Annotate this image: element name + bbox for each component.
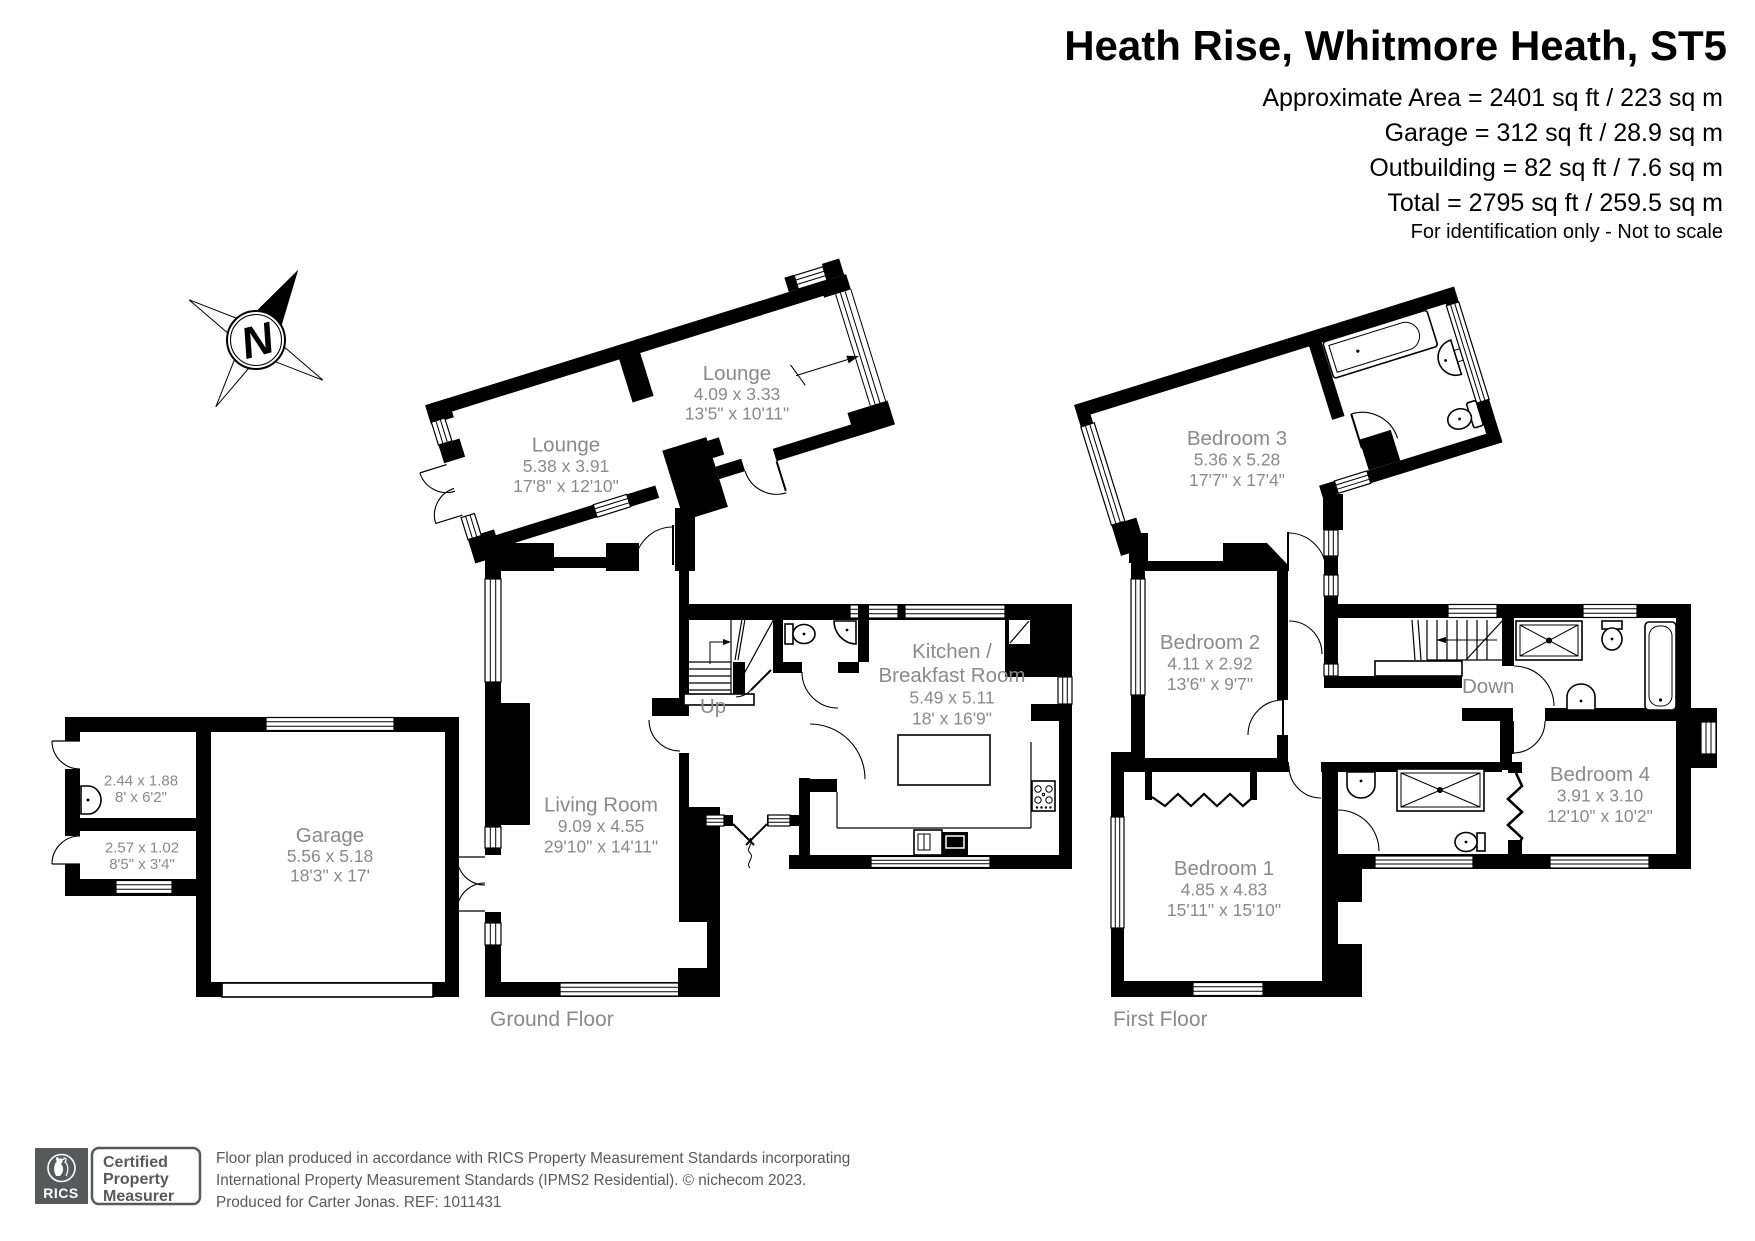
svg-text:Floor plan produced in accorda: Floor plan produced in accordance with R…: [216, 1150, 850, 1167]
svg-text:Down: Down: [1462, 675, 1514, 698]
svg-text:Outbuilding = 82 sq ft / 7.6 s: Outbuilding = 82 sq ft / 7.6 sq m: [1369, 154, 1723, 182]
svg-text:29'10" x 14'11": 29'10" x 14'11": [544, 837, 658, 857]
svg-text:8' x 6'2": 8' x 6'2": [115, 789, 167, 806]
svg-text:4.09 x 3.33: 4.09 x 3.33: [694, 384, 781, 404]
svg-text:12'10" x 10'2": 12'10" x 10'2": [1547, 806, 1653, 826]
svg-text:13'6" x 9'7": 13'6" x 9'7": [1167, 674, 1253, 694]
svg-text:International Property Measure: International Property Measurement Stand…: [216, 1172, 806, 1189]
svg-text:First Floor: First Floor: [1113, 1008, 1208, 1031]
svg-text:Bedroom 2: Bedroom 2: [1160, 631, 1260, 654]
svg-text:Produced for Carter Jonas. R: Produced for Carter Jonas. REF: 1011431: [216, 1194, 501, 1211]
svg-text:2.44 x 1.88: 2.44 x 1.88: [104, 773, 178, 790]
svg-text:4.11 x 2.92: 4.11 x 2.92: [1167, 654, 1252, 674]
svg-text:Kitchen /: Kitchen /: [912, 640, 992, 663]
svg-text:Bedroom 3: Bedroom 3: [1187, 427, 1287, 450]
svg-text:Property: Property: [103, 1171, 169, 1188]
svg-text:Lounge: Lounge: [703, 362, 771, 385]
svg-text:Bedroom 1: Bedroom 1: [1174, 857, 1274, 880]
svg-text:Approximate Area = 2401 sq ft: Approximate Area = 2401 sq ft / 223 sq m: [1262, 84, 1723, 112]
svg-text:Living Room: Living Room: [544, 794, 658, 817]
svg-text:4.85 x 4.83: 4.85 x 4.83: [1181, 880, 1268, 900]
svg-text:13'5" x 10'11": 13'5" x 10'11": [685, 404, 789, 424]
svg-text:9.09 x 4.55: 9.09 x 4.55: [558, 816, 645, 836]
svg-text:RICS: RICS: [43, 1185, 78, 1201]
svg-text:Heath Rise, Whitmore Heath, ST: Heath Rise, Whitmore Heath, ST5: [1064, 22, 1727, 69]
svg-text:17'7" x 17'4": 17'7" x 17'4": [1189, 470, 1285, 490]
svg-text:Bedroom 4: Bedroom 4: [1550, 763, 1650, 786]
svg-text:Breakfast Room: Breakfast Room: [879, 664, 1026, 687]
svg-text:Garage = 312 sq ft / 28.9 sq m: Garage = 312 sq ft / 28.9 sq m: [1385, 119, 1723, 147]
svg-text:Total = 2795 sq ft / 259.5 sq: Total = 2795 sq ft / 259.5 sq m: [1387, 189, 1723, 217]
svg-text:15'11" x 15'10": 15'11" x 15'10": [1167, 900, 1281, 920]
svg-text:8'5" x 3'4": 8'5" x 3'4": [109, 856, 175, 873]
svg-text:Measurer: Measurer: [103, 1188, 174, 1205]
svg-text:Up: Up: [700, 695, 726, 718]
svg-text:5.56 x 5.18: 5.56 x 5.18: [287, 846, 374, 866]
svg-text:Certified: Certified: [103, 1154, 168, 1171]
svg-text:For identification only - Not: For identification only - Not to scale: [1411, 221, 1723, 243]
svg-text:2.57 x 1.02: 2.57 x 1.02: [105, 840, 179, 857]
svg-text:18' x 16'9": 18' x 16'9": [912, 709, 992, 729]
svg-text:5.49 x 5.11: 5.49 x 5.11: [909, 688, 994, 708]
svg-text:18'3" x 17': 18'3" x 17': [290, 866, 370, 886]
svg-text:Ground Floor: Ground Floor: [490, 1008, 614, 1031]
svg-text:17'8" x 12'10": 17'8" x 12'10": [513, 476, 619, 496]
svg-text:3.91 x 3.10: 3.91 x 3.10: [1557, 786, 1644, 806]
svg-text:5.36 x 5.28: 5.36 x 5.28: [1194, 450, 1281, 470]
svg-text:Garage: Garage: [296, 824, 364, 847]
svg-text:5.38 x 3.91: 5.38 x 3.91: [523, 456, 610, 476]
svg-text:Lounge: Lounge: [532, 434, 600, 457]
